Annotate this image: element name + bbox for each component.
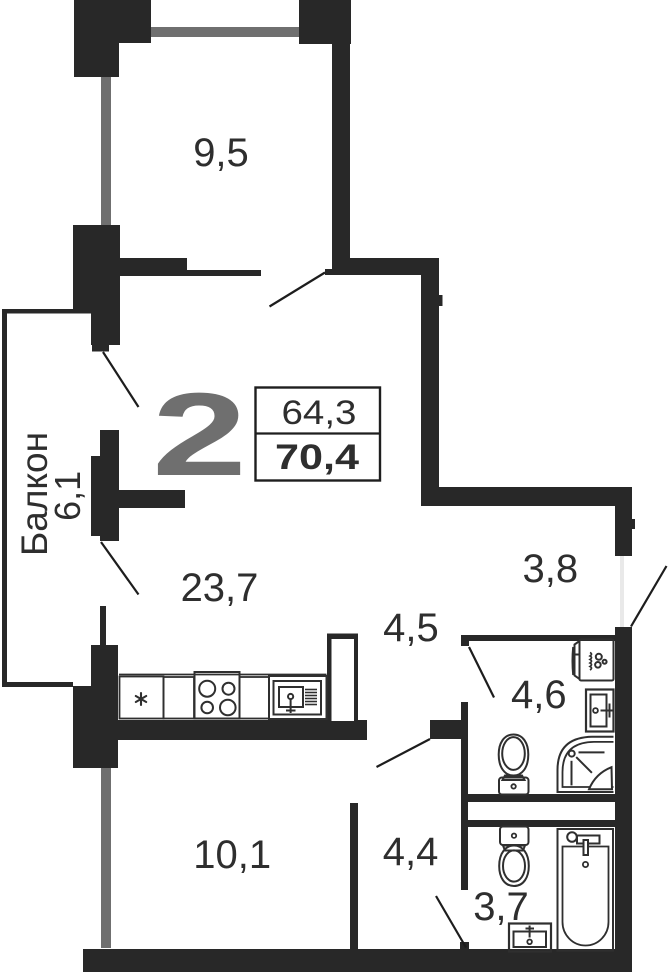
svg-text:70,4: 70,4 [275, 438, 360, 477]
svg-text:10,1: 10,1 [193, 833, 271, 877]
svg-text:4,5: 4,5 [383, 606, 439, 650]
svg-text:6,1: 6,1 [47, 471, 88, 521]
svg-text:3,7: 3,7 [473, 885, 529, 929]
svg-text:2: 2 [152, 369, 247, 501]
svg-text:64,3: 64,3 [282, 394, 357, 432]
svg-text:9,5: 9,5 [193, 131, 249, 175]
svg-text:23,7: 23,7 [181, 566, 259, 610]
svg-text:4,6: 4,6 [511, 673, 567, 717]
svg-text:4,4: 4,4 [383, 830, 439, 874]
svg-text:3,8: 3,8 [522, 547, 578, 591]
